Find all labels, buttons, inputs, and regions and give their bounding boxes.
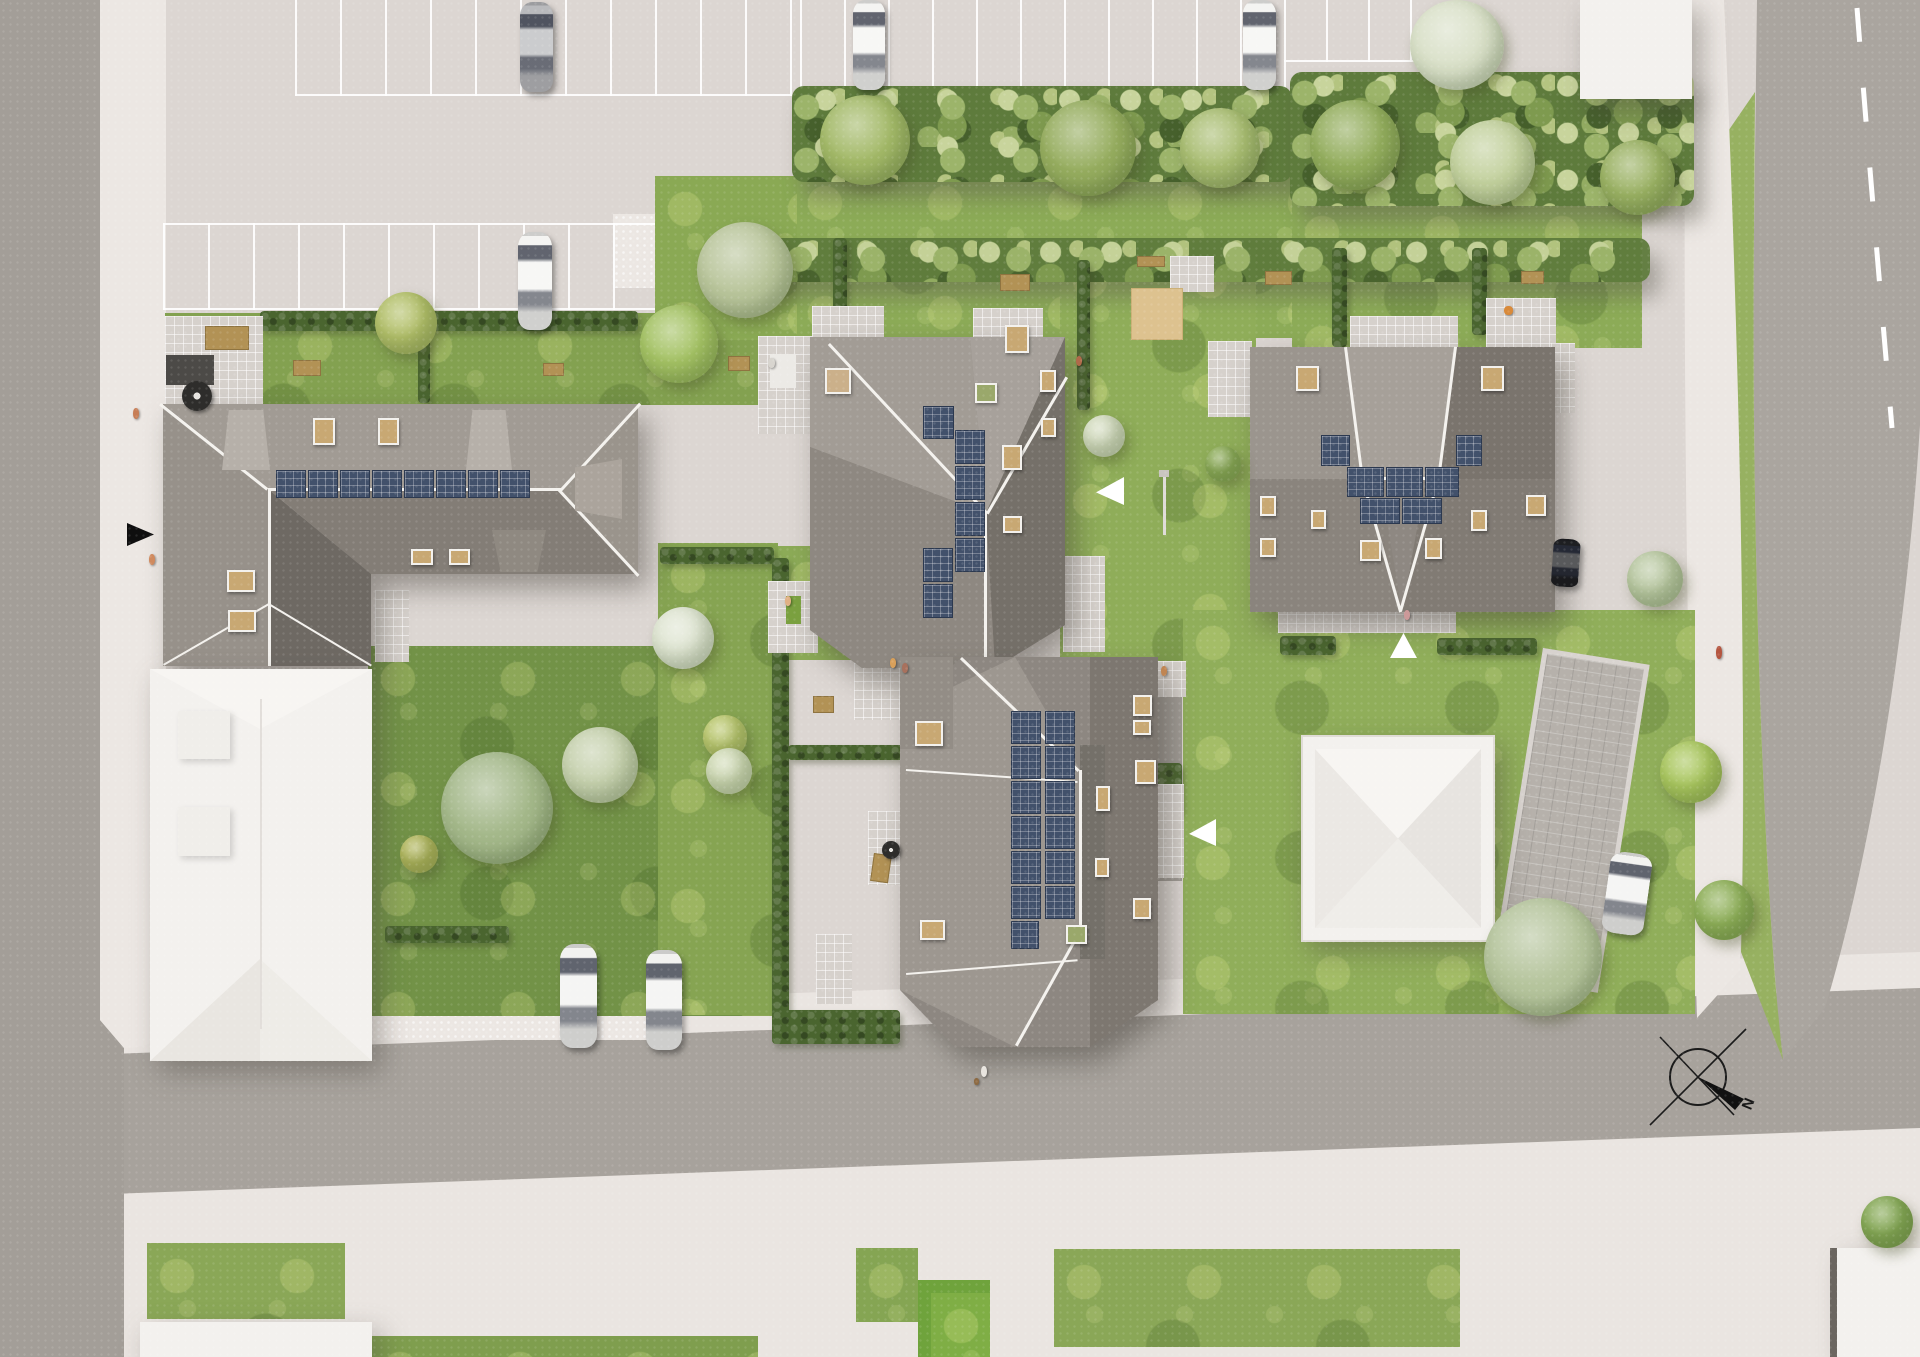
person — [981, 1066, 987, 1077]
solar-panel — [1011, 746, 1041, 779]
marker-triangle-white — [1189, 819, 1216, 846]
roof-window — [1260, 496, 1276, 516]
site-plan: N — [0, 0, 1920, 1357]
solar-panel — [1011, 816, 1041, 849]
solar-panel — [1402, 498, 1442, 524]
roof-window — [915, 721, 943, 746]
roof-window — [378, 418, 399, 445]
solar-panel — [1321, 435, 1350, 466]
roof-window — [1133, 898, 1151, 919]
roof-window — [313, 418, 335, 445]
tree — [1627, 551, 1683, 607]
tree — [640, 305, 718, 383]
person — [768, 358, 775, 368]
person — [1076, 356, 1082, 366]
roof-window — [1095, 858, 1109, 877]
solar-panel — [955, 430, 985, 464]
solar-panel — [372, 470, 402, 498]
roof-window — [1425, 538, 1442, 559]
roof-window — [1005, 325, 1029, 353]
marker-triangle-black — [127, 523, 154, 546]
tree — [1660, 741, 1722, 803]
solar-panel — [955, 502, 985, 536]
tree — [375, 292, 437, 354]
building-shadow-edge — [1830, 1248, 1837, 1357]
roof-window — [1471, 510, 1487, 531]
tree — [1861, 1196, 1913, 1248]
solar-panel — [1011, 711, 1041, 744]
roof-dormer — [466, 410, 512, 470]
solar-panel — [1011, 921, 1039, 949]
tree — [562, 727, 638, 803]
solar-panel — [1456, 435, 1482, 466]
car-white — [1601, 850, 1654, 937]
solar-panel — [1045, 746, 1075, 779]
car-white — [518, 232, 552, 330]
solar-panel — [404, 470, 434, 498]
solar-panel — [276, 470, 306, 498]
roof-window — [411, 549, 433, 565]
person — [785, 596, 791, 606]
roof-window — [1481, 366, 1504, 391]
roof-window — [1360, 540, 1381, 561]
bbq-grill — [182, 381, 212, 411]
solar-panel — [340, 470, 370, 498]
solar-panel — [1011, 781, 1041, 814]
roof-window — [1260, 538, 1276, 557]
marker-triangle-white — [1390, 633, 1417, 658]
tree — [652, 607, 714, 669]
solar-panel — [436, 470, 466, 498]
tree — [441, 752, 553, 864]
roof-window — [449, 549, 470, 565]
tree — [1083, 415, 1125, 457]
tree — [1180, 108, 1260, 188]
roof-window — [228, 610, 256, 632]
solar-panel — [1347, 467, 1384, 497]
solar-panel — [1045, 781, 1075, 814]
roof-window — [1133, 695, 1152, 716]
roof-dormer — [222, 410, 270, 470]
car-silver — [520, 2, 553, 92]
bush — [1205, 446, 1241, 482]
roof-window — [825, 368, 851, 394]
solar-panel — [1045, 886, 1075, 919]
person — [890, 658, 896, 668]
solar-panel — [955, 466, 985, 500]
solar-panel — [923, 548, 953, 582]
bush — [706, 748, 752, 794]
solar-panel — [1045, 816, 1075, 849]
bbq-grill — [882, 841, 900, 859]
car-black — [1551, 538, 1581, 588]
compass-graphic — [1632, 1017, 1782, 1137]
solar-panel — [468, 470, 498, 498]
tree — [1484, 898, 1602, 1016]
car-white — [646, 950, 682, 1050]
solar-panel — [923, 406, 954, 439]
compass-rose: N — [1632, 1017, 1782, 1137]
roof-window — [227, 570, 255, 592]
roof-window — [1066, 925, 1087, 944]
roof-window — [1311, 510, 1326, 529]
solar-panel — [1011, 886, 1041, 919]
roof-dormer — [492, 530, 546, 572]
person — [1161, 666, 1167, 676]
marker-triangle-white — [1096, 477, 1124, 505]
tree — [820, 95, 910, 185]
car-white — [560, 944, 597, 1048]
cyclist — [1716, 646, 1722, 659]
solar-panel — [1386, 467, 1423, 497]
bush — [400, 835, 438, 873]
dog — [974, 1078, 979, 1085]
person — [902, 663, 908, 673]
tree — [697, 222, 793, 318]
car-white — [1243, 0, 1276, 90]
person — [133, 408, 139, 419]
roof-window — [1002, 445, 1022, 470]
tree — [1694, 880, 1754, 940]
solar-panel — [955, 538, 985, 572]
solar-panel — [308, 470, 338, 498]
roof-window — [1296, 366, 1319, 391]
lamp-head — [1159, 470, 1169, 477]
orange-chair — [1504, 306, 1513, 315]
tree — [1450, 120, 1535, 205]
lamp-post — [1163, 475, 1166, 535]
person — [1404, 610, 1410, 620]
roof-window — [1526, 495, 1546, 516]
roof-window — [975, 383, 997, 403]
roof-window — [1040, 370, 1056, 392]
tree — [1410, 0, 1504, 90]
roof-window — [1096, 786, 1110, 811]
detail-layer — [0, 0, 1920, 1357]
roof-window — [1003, 516, 1022, 533]
solar-panel — [923, 584, 953, 618]
roof-dormer — [575, 459, 622, 519]
solar-panel — [1360, 498, 1400, 524]
solar-panel — [1425, 467, 1459, 497]
roof-window — [1135, 760, 1156, 784]
solar-panel — [1045, 711, 1075, 744]
roof-window — [920, 920, 945, 940]
solar-panel — [1011, 851, 1041, 884]
solar-panel — [1045, 851, 1075, 884]
tree — [1310, 100, 1400, 190]
roof-window — [1133, 720, 1151, 735]
tree — [1600, 140, 1675, 215]
tree — [1040, 100, 1136, 196]
person — [149, 554, 155, 565]
car-white — [853, 0, 885, 90]
solar-panel — [500, 470, 530, 498]
roof-window — [1041, 418, 1056, 437]
